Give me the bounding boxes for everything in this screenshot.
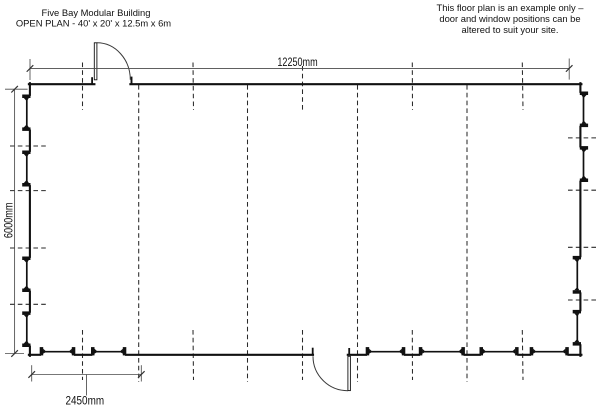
svg-text:altered to suit your site.: altered to suit your site. [462, 24, 559, 35]
svg-text:OPEN PLAN - 40' x 20' x 12.5m: OPEN PLAN - 40' x 20' x 12.5m x 6m [16, 17, 171, 28]
svg-text:12250mm: 12250mm [277, 56, 317, 70]
svg-text:This floor plan is an example: This floor plan is an example only – [437, 2, 585, 13]
svg-text:2450mm: 2450mm [66, 395, 105, 407]
svg-text:6000mm: 6000mm [2, 202, 16, 238]
svg-text:Five Bay Modular Building: Five Bay Modular Building [42, 7, 151, 18]
svg-text:door and window positions can: door and window positions can be [439, 13, 580, 24]
